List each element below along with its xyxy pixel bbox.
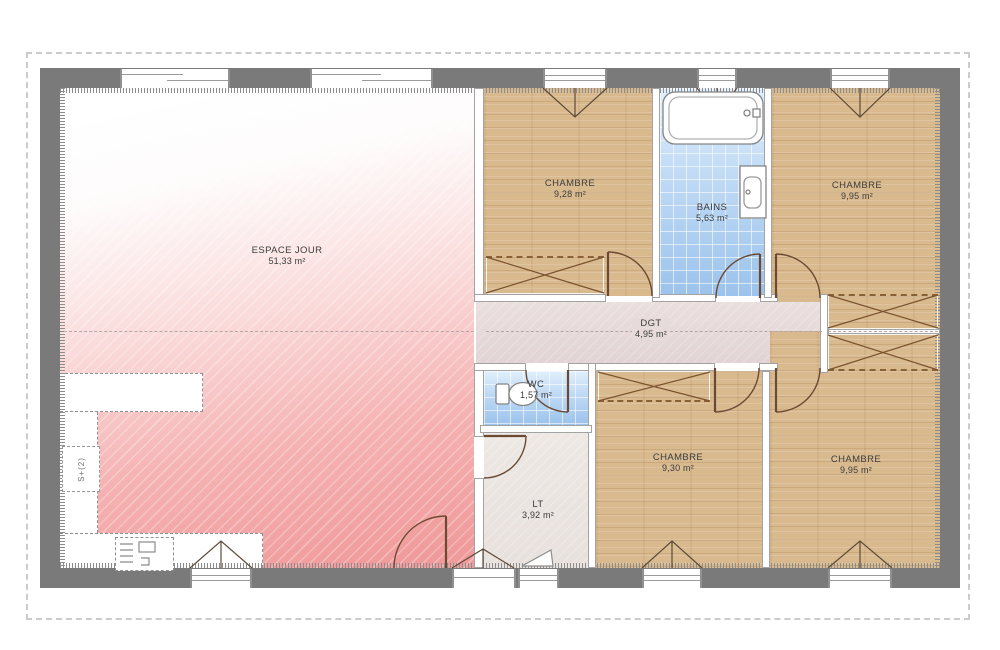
kitchen-counter-area xyxy=(60,373,203,412)
axis-line-left xyxy=(64,331,474,332)
window-chambre-1 xyxy=(543,69,607,88)
room-label-chambre-1: CHAMBRE 9,28 m² xyxy=(545,178,595,200)
room-area: 5,63 m² xyxy=(696,213,728,223)
room-name: BAINS xyxy=(697,202,728,213)
room-name: CHAMBRE xyxy=(545,178,595,189)
wall-partition xyxy=(652,88,660,298)
room-name: CHAMBRE xyxy=(831,454,881,465)
room-bains xyxy=(660,88,764,296)
window-sliding-2 xyxy=(310,69,433,88)
room-area: 9,95 m² xyxy=(841,191,873,201)
closet-chambre-3 xyxy=(598,371,710,402)
floor-plan: S+(2) xyxy=(0,0,1000,650)
room-label-dgt: DGT 4,95 m² xyxy=(632,318,670,340)
wall-partition xyxy=(764,88,772,298)
room-label-bains: BAINS 5,63 m² xyxy=(696,202,728,224)
room-area: 9,95 m² xyxy=(840,465,872,475)
room-label-lt: LT 3,92 m² xyxy=(522,499,554,521)
kitchen-appliance-box xyxy=(115,537,174,571)
window-chambre-2 xyxy=(830,69,890,88)
wall-partition xyxy=(480,425,592,433)
room-label-chambre-2: CHAMBRE 9,95 m² xyxy=(832,180,882,202)
room-name: CHAMBRE xyxy=(653,452,703,463)
room-name: WC xyxy=(528,379,545,390)
room-espace-jour xyxy=(60,88,474,568)
window-chambre-3 xyxy=(642,569,702,588)
insulation-top xyxy=(60,88,940,93)
wall-partition xyxy=(474,478,484,568)
wall-partition xyxy=(762,371,770,568)
axis-line-right xyxy=(828,331,938,332)
room-area: 9,28 m² xyxy=(554,189,586,199)
room-label-wc: WC 1,57 m² xyxy=(520,379,552,401)
wall-partition xyxy=(474,294,606,302)
window-chambre-4 xyxy=(828,569,892,588)
insulation-bottom xyxy=(60,563,940,568)
room-label-chambre-4: CHAMBRE 9,95 m² xyxy=(831,454,881,476)
room-name: ESPACE JOUR xyxy=(252,245,323,256)
window-bains xyxy=(697,69,737,88)
room-name: LT xyxy=(532,499,543,510)
closet-chambre-1 xyxy=(486,256,604,294)
entry-door-opening xyxy=(452,569,516,588)
room-label-espace-jour: ESPACE JOUR 51,33 m² xyxy=(252,245,323,267)
stair-reservation-box: S+(2) xyxy=(62,446,100,492)
room-area: 1,57 m² xyxy=(520,390,552,400)
window-sliding-1 xyxy=(120,69,230,88)
wall-partition xyxy=(820,294,828,373)
room-area: 4,95 m² xyxy=(635,329,667,339)
wall-partition xyxy=(474,363,526,371)
wall-partition xyxy=(588,363,596,568)
wall-partition xyxy=(759,363,778,371)
window-lt xyxy=(518,569,559,588)
room-name: DGT xyxy=(640,318,661,329)
room-name: CHAMBRE xyxy=(832,180,882,191)
room-area: 3,92 m² xyxy=(522,510,554,520)
insulation-left xyxy=(60,88,65,568)
wall-partition xyxy=(652,294,716,302)
closet-chambre-2 xyxy=(828,294,938,329)
room-label-chambre-3: CHAMBRE 9,30 m² xyxy=(653,452,703,474)
closet-chambre-4 xyxy=(828,334,938,371)
window-kitchen xyxy=(190,569,252,588)
room-area: 51,33 m² xyxy=(268,256,305,266)
room-area: 9,30 m² xyxy=(662,463,694,473)
wall-partition xyxy=(474,88,484,298)
stair-note-text: S+(2) xyxy=(76,457,85,482)
